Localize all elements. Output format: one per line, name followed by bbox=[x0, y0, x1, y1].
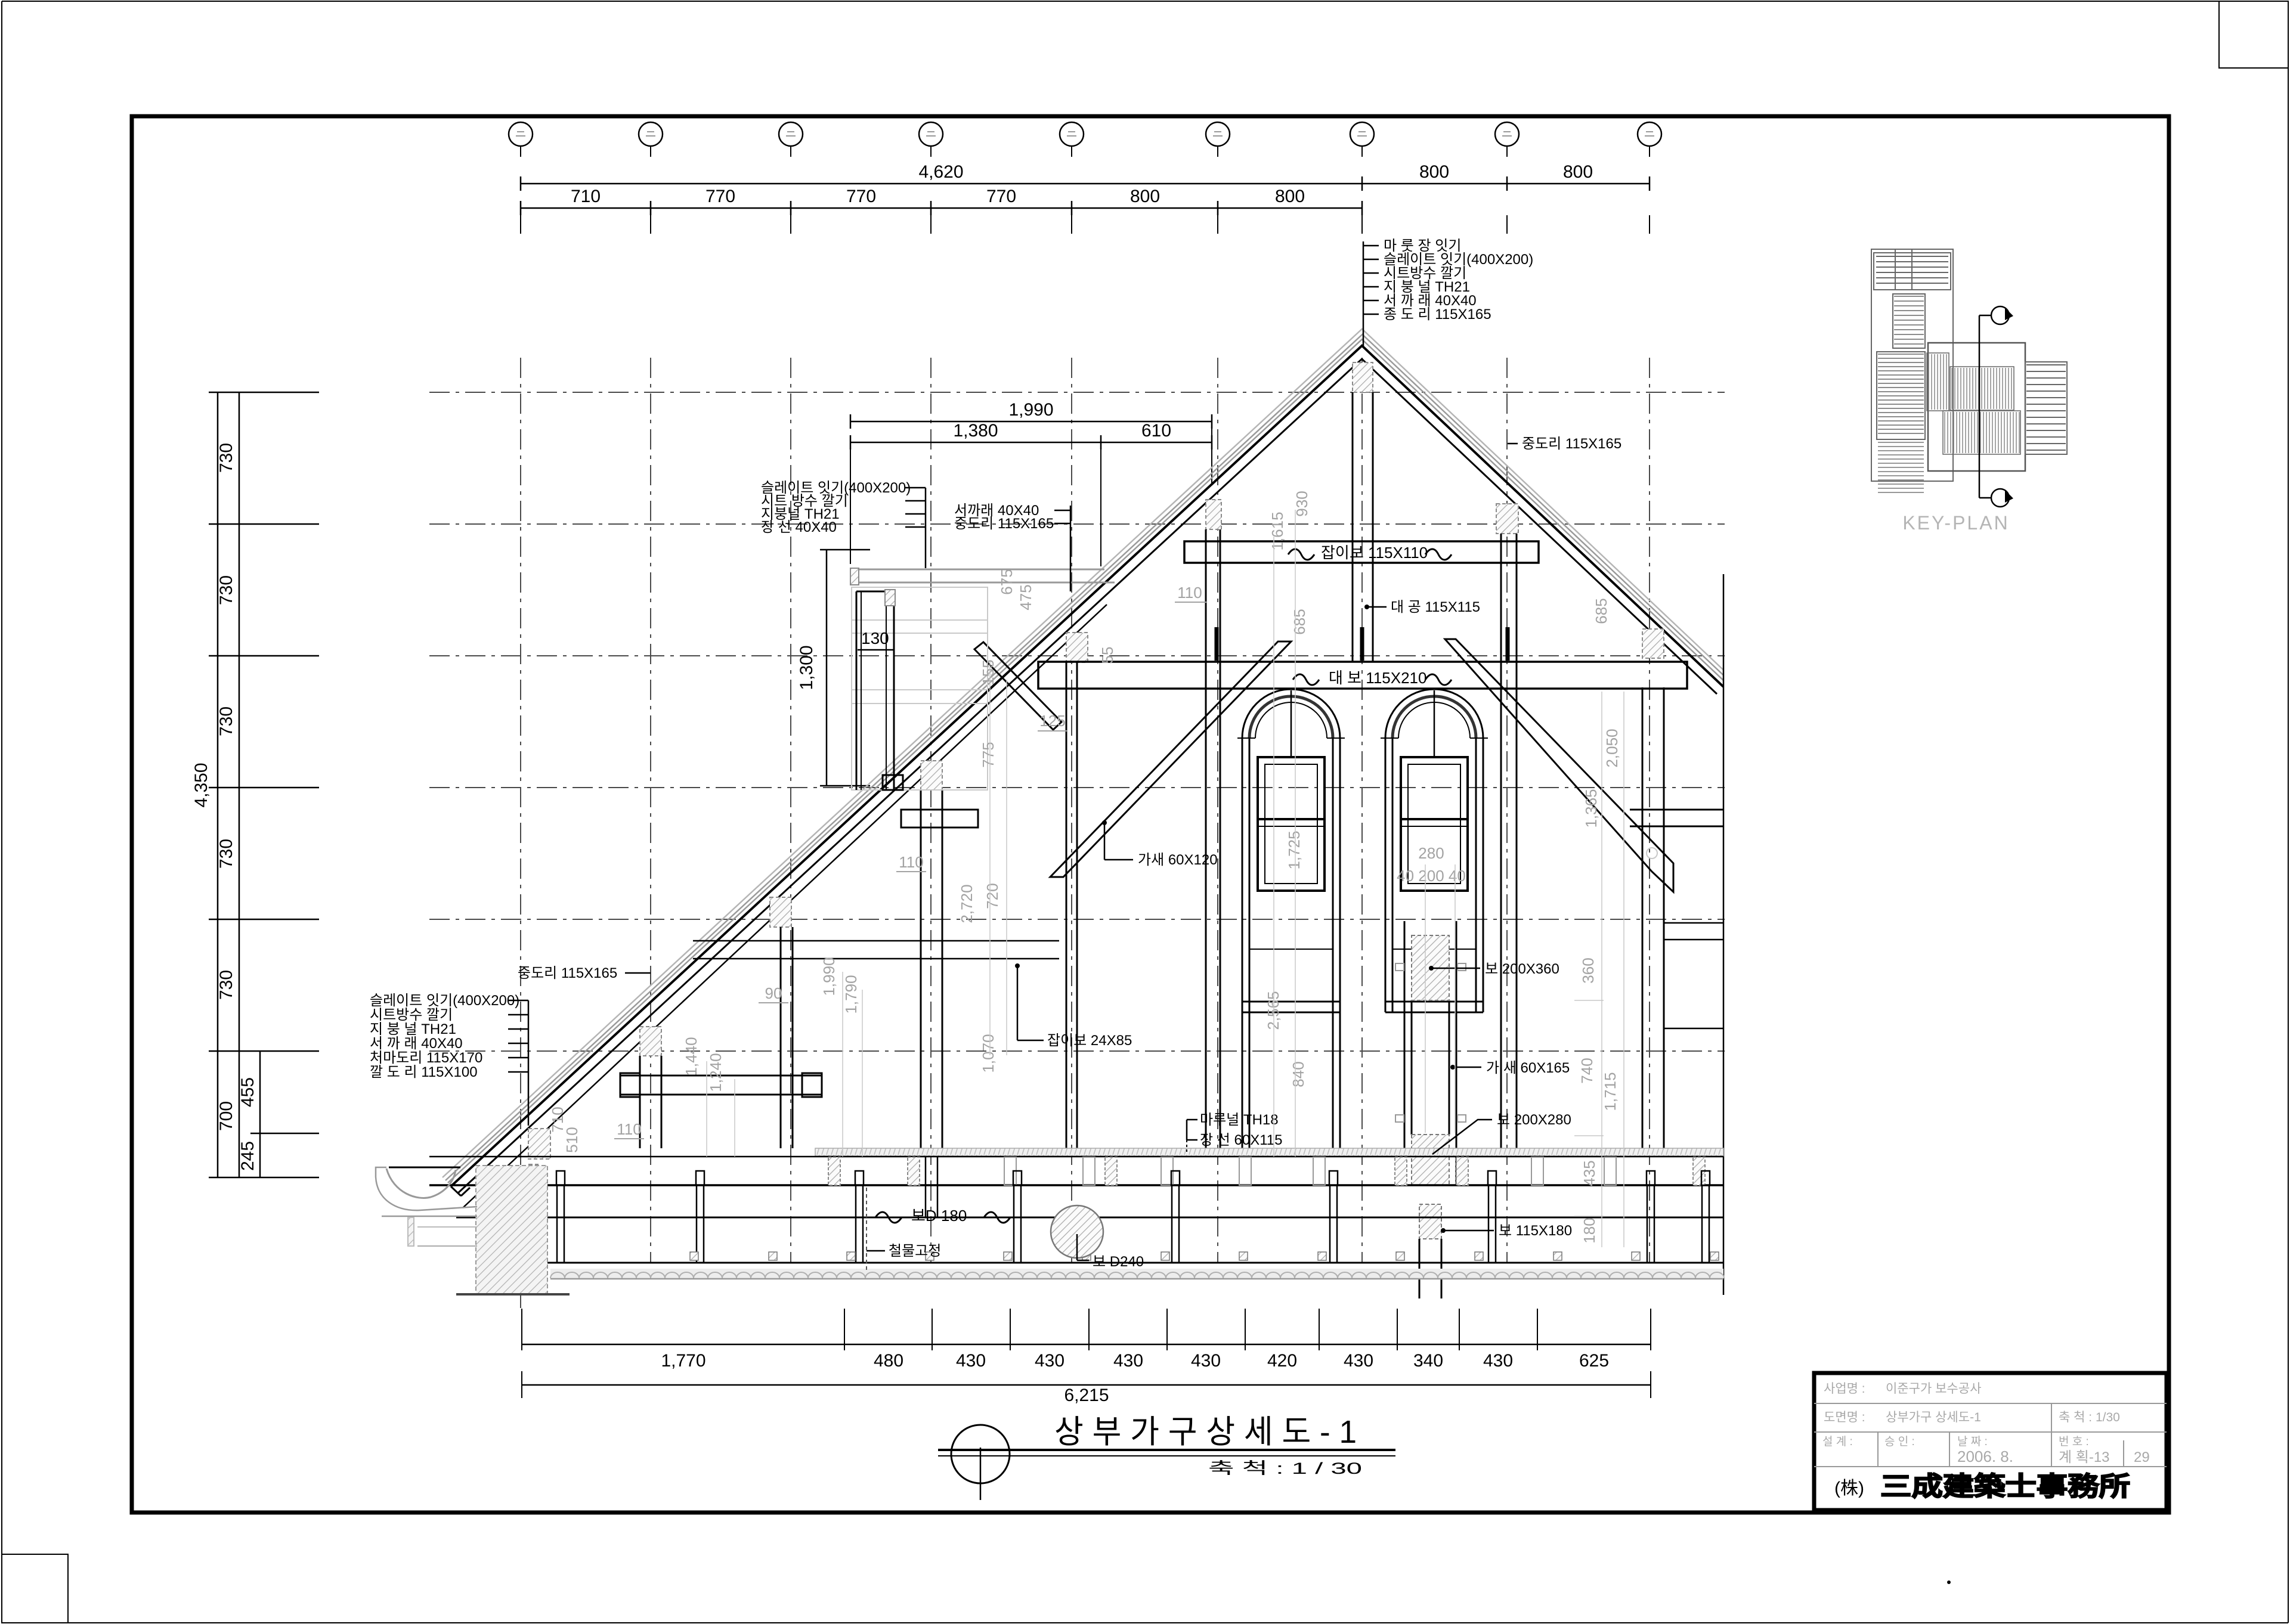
svg-text:155: 155 bbox=[979, 659, 997, 685]
svg-text:130: 130 bbox=[861, 629, 889, 647]
svg-text:685: 685 bbox=[1291, 609, 1308, 634]
svg-text:800: 800 bbox=[1419, 162, 1449, 182]
svg-text:435: 435 bbox=[1580, 1160, 1598, 1186]
svg-text:29: 29 bbox=[2134, 1449, 2150, 1465]
svg-text:430: 430 bbox=[1113, 1351, 1143, 1371]
svg-text:대 공 115X115: 대 공 115X115 bbox=[1391, 599, 1480, 615]
svg-text:360: 360 bbox=[1579, 957, 1597, 983]
svg-text:보D 180: 보D 180 bbox=[911, 1207, 967, 1225]
svg-text:730: 730 bbox=[216, 575, 236, 605]
svg-text:KEY-PLAN: KEY-PLAN bbox=[1902, 512, 2009, 534]
svg-text:55: 55 bbox=[1098, 647, 1116, 664]
svg-text:2006. 8.: 2006. 8. bbox=[1957, 1448, 2013, 1465]
svg-text:710: 710 bbox=[571, 187, 601, 206]
svg-text:보 115X180: 보 115X180 bbox=[1499, 1223, 1572, 1239]
svg-text:420: 420 bbox=[1267, 1351, 1297, 1371]
svg-text:깔 도 리 115X100: 깔 도 리 115X100 bbox=[370, 1064, 478, 1080]
svg-text:6,215: 6,215 bbox=[1064, 1386, 1109, 1405]
svg-text:사업명 :: 사업명 : bbox=[1824, 1382, 1865, 1396]
svg-text:2,565: 2,565 bbox=[1264, 991, 1282, 1030]
svg-text:이준구가 보수공사: 이준구가 보수공사 bbox=[1886, 1382, 1981, 1396]
svg-text:철물고정: 철물고정 bbox=[889, 1243, 941, 1259]
svg-text:1,240: 1,240 bbox=[707, 1053, 725, 1092]
svg-text:마루널 TH18: 마루널 TH18 bbox=[1200, 1112, 1279, 1128]
svg-text:설 계 :: 설 계 : bbox=[1822, 1435, 1853, 1448]
svg-text:장 선 40X40: 장 선 40X40 bbox=[761, 519, 837, 535]
svg-text:430: 430 bbox=[1191, 1351, 1221, 1371]
svg-text:675: 675 bbox=[998, 569, 1016, 594]
svg-text:2,050: 2,050 bbox=[1603, 729, 1621, 767]
svg-text:625: 625 bbox=[1579, 1351, 1609, 1371]
svg-text:가 새 60X165: 가 새 60X165 bbox=[1486, 1060, 1570, 1076]
svg-text:110: 110 bbox=[1177, 584, 1202, 602]
svg-text:4,350: 4,350 bbox=[191, 763, 211, 807]
svg-text:잡이보 115X110: 잡이보 115X110 bbox=[1321, 544, 1428, 562]
svg-text:1,300: 1,300 bbox=[797, 645, 816, 690]
svg-text:430: 430 bbox=[1035, 1351, 1064, 1371]
svg-text:시트방수 깔기: 시트방수 깔기 bbox=[370, 1007, 453, 1023]
svg-text:축 척 : 1 / 30: 축 척 : 1 / 30 bbox=[1208, 1459, 1362, 1477]
svg-text:보 200X280: 보 200X280 bbox=[1497, 1112, 1571, 1128]
svg-text:800: 800 bbox=[1563, 162, 1593, 182]
svg-text:중도리 115X165: 중도리 115X165 bbox=[1522, 436, 1621, 452]
svg-text:1,440: 1,440 bbox=[682, 1037, 700, 1076]
svg-text:승 인 :: 승 인 : bbox=[1884, 1435, 1915, 1448]
svg-text:730: 730 bbox=[216, 839, 236, 869]
svg-text:잡이보 24X85: 잡이보 24X85 bbox=[1047, 1033, 1132, 1049]
svg-text:1,365: 1,365 bbox=[1582, 789, 1600, 828]
svg-text:720: 720 bbox=[983, 883, 1001, 909]
svg-text:455: 455 bbox=[238, 1077, 258, 1107]
svg-text:685: 685 bbox=[1592, 598, 1610, 624]
svg-text:800: 800 bbox=[1275, 187, 1305, 206]
svg-text:840: 840 bbox=[1289, 1061, 1307, 1087]
svg-text:1,615: 1,615 bbox=[1268, 512, 1286, 550]
svg-text:상 부 가 구 상 세 도 - 1: 상 부 가 구 상 세 도 - 1 bbox=[1054, 1414, 1357, 1450]
svg-text:180: 180 bbox=[1580, 1217, 1598, 1243]
svg-text:110: 110 bbox=[617, 1120, 641, 1138]
svg-text:번 호 :: 번 호 : bbox=[2059, 1435, 2089, 1448]
svg-text:三成建築士事務所: 三成建築士事務所 bbox=[1880, 1472, 2130, 1501]
svg-text:775: 775 bbox=[979, 742, 997, 767]
svg-text:날 짜 :: 날 짜 : bbox=[1957, 1435, 1988, 1448]
svg-text:740: 740 bbox=[1578, 1058, 1596, 1083]
svg-text:280: 280 bbox=[1418, 844, 1444, 862]
svg-text:110: 110 bbox=[899, 853, 923, 871]
svg-text:가새 60X120: 가새 60X120 bbox=[1138, 852, 1218, 868]
svg-text:4,620: 4,620 bbox=[918, 162, 963, 182]
svg-text:90: 90 bbox=[765, 984, 782, 1002]
svg-text:종 도 리 115X165: 종 도 리 115X165 bbox=[1384, 306, 1491, 323]
svg-text:축 척 : 1/30: 축 척 : 1/30 bbox=[2059, 1411, 2120, 1424]
svg-text:중도리 115X165: 중도리 115X165 bbox=[954, 516, 1054, 532]
svg-text:1,790: 1,790 bbox=[842, 975, 860, 1014]
svg-text:770: 770 bbox=[846, 187, 876, 206]
svg-text:610: 610 bbox=[1141, 421, 1171, 441]
svg-text:245: 245 bbox=[238, 1141, 258, 1171]
svg-text:510: 510 bbox=[563, 1127, 581, 1152]
svg-text:475: 475 bbox=[1017, 584, 1035, 610]
svg-text:1,070: 1,070 bbox=[979, 1034, 997, 1073]
svg-text:1,770: 1,770 bbox=[661, 1351, 705, 1371]
svg-text:보 D240: 보 D240 bbox=[1093, 1254, 1144, 1270]
svg-text:770: 770 bbox=[986, 187, 1016, 206]
svg-text:장 선 60X115: 장 선 60X115 bbox=[1200, 1132, 1282, 1148]
svg-text:서 까 래 40X40: 서 까 래 40X40 bbox=[370, 1036, 463, 1052]
svg-text:480: 480 bbox=[874, 1351, 903, 1371]
svg-text:계 획-13: 계 획-13 bbox=[2059, 1449, 2110, 1465]
svg-text:보 200X360: 보 200X360 bbox=[1485, 961, 1559, 977]
svg-text:730: 730 bbox=[216, 706, 236, 736]
svg-text:430: 430 bbox=[1483, 1351, 1513, 1371]
svg-text:340: 340 bbox=[1413, 1351, 1443, 1371]
svg-text:도면명 :: 도면명 : bbox=[1824, 1411, 1865, 1424]
svg-text:125: 125 bbox=[1039, 712, 1065, 730]
svg-text:2,720: 2,720 bbox=[958, 884, 976, 923]
svg-text:1,380: 1,380 bbox=[953, 421, 998, 441]
svg-text:상부가구 상세도-1: 상부가구 상세도-1 bbox=[1886, 1411, 1981, 1424]
svg-text:처마도리 115X170: 처마도리 115X170 bbox=[370, 1050, 482, 1066]
svg-text:730: 730 bbox=[216, 970, 236, 1000]
svg-text:중도리 115X165: 중도리 115X165 bbox=[518, 965, 617, 981]
svg-text:대 보 115X210: 대 보 115X210 bbox=[1329, 669, 1426, 687]
svg-text:1,715: 1,715 bbox=[1601, 1072, 1619, 1111]
svg-text:700: 700 bbox=[216, 1101, 236, 1131]
svg-text:430: 430 bbox=[1344, 1351, 1373, 1371]
svg-text:슬레이트 잇기(400X200): 슬레이트 잇기(400X200) bbox=[370, 993, 519, 1009]
svg-text:1,990: 1,990 bbox=[1008, 400, 1053, 420]
svg-text:1,990: 1,990 bbox=[820, 957, 838, 996]
svg-text:1,725: 1,725 bbox=[1285, 830, 1303, 869]
svg-text:770: 770 bbox=[705, 187, 735, 206]
svg-text:800: 800 bbox=[1130, 187, 1160, 206]
svg-text:지 붕 널 TH21: 지 붕 널 TH21 bbox=[370, 1021, 456, 1037]
svg-text:730: 730 bbox=[216, 443, 236, 473]
svg-text:(株): (株) bbox=[1834, 1479, 1864, 1498]
svg-text:430: 430 bbox=[956, 1351, 986, 1371]
